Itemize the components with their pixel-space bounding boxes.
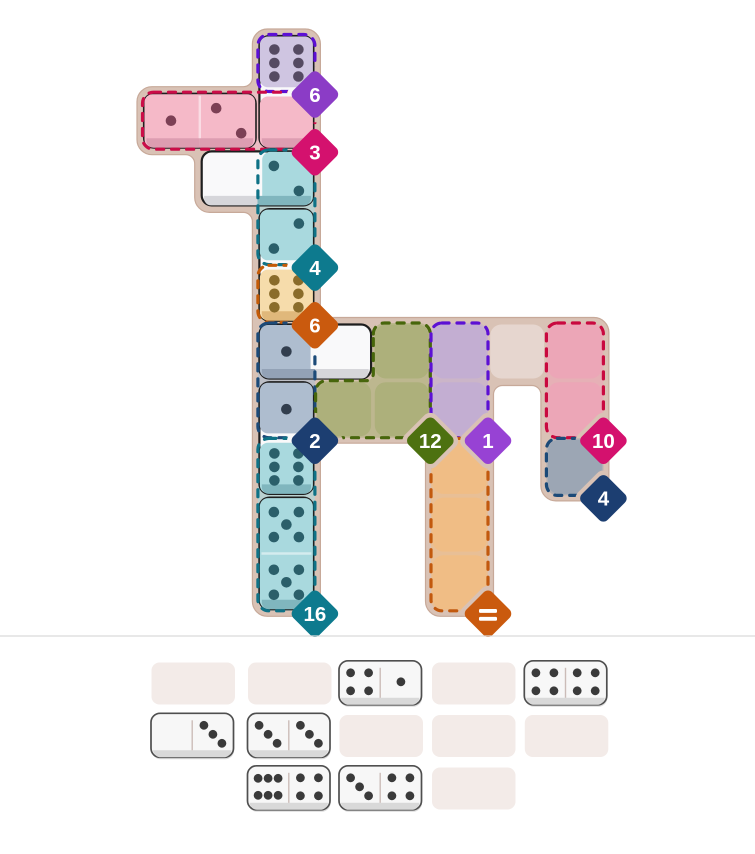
svg-text:1: 1 [482, 430, 493, 453]
svg-text:3: 3 [309, 142, 320, 165]
svg-text:4: 4 [309, 257, 321, 280]
svg-text:6: 6 [309, 84, 320, 107]
svg-text:4: 4 [598, 488, 610, 511]
svg-text:16: 16 [303, 603, 326, 626]
svg-text:12: 12 [419, 430, 442, 453]
svg-text:6: 6 [309, 315, 320, 338]
svg-text:2: 2 [309, 430, 320, 453]
svg-text:10: 10 [592, 430, 615, 453]
